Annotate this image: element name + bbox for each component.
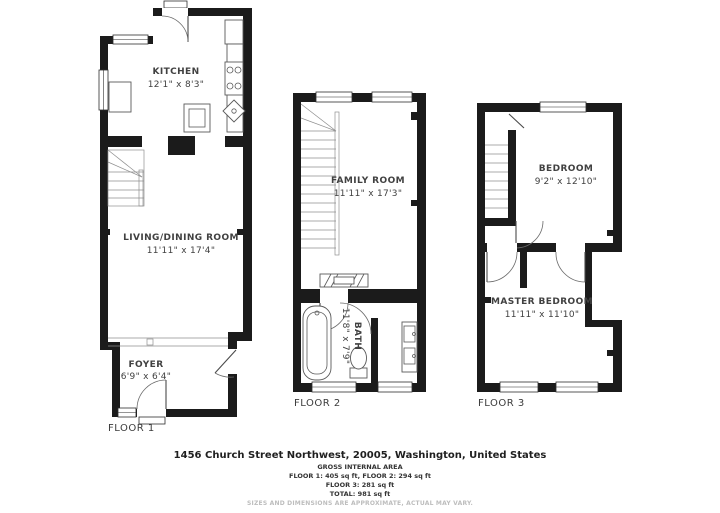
window xyxy=(99,70,108,110)
closet-door xyxy=(556,243,585,282)
footer: 1456 Church Street Northwest, 20005, Was… xyxy=(0,449,720,509)
floor-3-label: FLOOR 3 xyxy=(478,398,525,409)
wall-segment xyxy=(520,252,527,288)
floor-areas-line-1: FLOOR 1: 405 sq ft, FLOOR 2: 294 sq ft xyxy=(0,472,720,481)
room-label-living-dining: LIVING/DINING ROOM xyxy=(123,233,239,243)
kitchen-island xyxy=(184,104,210,132)
window xyxy=(316,92,352,102)
window xyxy=(540,102,586,112)
staircase xyxy=(108,150,144,206)
window xyxy=(113,35,148,44)
floor-1-label: FLOOR 1 xyxy=(108,423,155,434)
refrigerator xyxy=(225,20,243,44)
room-dims-kitchen: 12'1" x 8'3" xyxy=(148,80,205,90)
bath-divider-wall xyxy=(293,289,426,303)
window xyxy=(118,408,136,417)
window xyxy=(556,382,598,392)
floor-areas-line-2: FLOOR 3: 281 sq ft xyxy=(0,481,720,490)
room-dims-living-dining: 11'11" x 17'4" xyxy=(147,246,216,256)
floor-1-plan: KITCHEN 12'1" x 8'3" LIVING/DINING ROOM … xyxy=(99,1,252,434)
wall-segment xyxy=(228,332,252,341)
floor-3-plan: BEDROOM 9'2" x 12'10" MASTER BEDROOM 11'… xyxy=(477,102,622,409)
kitchen-divider-wall xyxy=(108,136,243,155)
cabinet xyxy=(109,82,131,112)
room-label-master-bedroom: MASTER BEDROOM xyxy=(491,297,593,307)
wall-segment xyxy=(371,318,378,383)
room-label-kitchen: KITCHEN xyxy=(152,67,199,77)
wall-anchor xyxy=(104,229,110,235)
staircase xyxy=(485,114,524,208)
window xyxy=(372,92,412,102)
size-disclaimer: SIZES AND DIMENSIONS ARE APPROXIMATE, AC… xyxy=(0,499,720,509)
total-area: TOTAL: 981 sq ft xyxy=(0,490,720,499)
room-label-family-room: FAMILY ROOM xyxy=(331,176,405,186)
room-dims-master-bedroom: 11'11" x 11'10" xyxy=(505,310,580,320)
floor-2-label: FLOOR 2 xyxy=(294,398,341,409)
wall-anchor xyxy=(607,230,613,236)
wall-anchor xyxy=(411,112,417,120)
stair-wall xyxy=(508,130,516,218)
wall-anchor xyxy=(607,350,613,356)
closet-door xyxy=(215,349,237,377)
gross-internal-area-label: GROSS INTERNAL AREA xyxy=(0,463,720,472)
entry-door xyxy=(162,1,188,42)
stove xyxy=(225,62,243,95)
bathtub xyxy=(303,306,331,380)
window xyxy=(312,382,356,392)
room-dims-family-room: 11'11" x 17'3" xyxy=(334,189,403,199)
floorplan-canvas: KITCHEN 12'1" x 8'3" LIVING/DINING ROOM … xyxy=(0,0,720,445)
window xyxy=(500,382,538,392)
foyer-door xyxy=(137,380,166,424)
floor-2-plan: FAMILY ROOM 11'11" x 17'3" BATH 11'8" x … xyxy=(293,92,426,409)
wall-anchor xyxy=(411,200,417,206)
window xyxy=(378,382,412,392)
room-dims-bedroom: 9'2" x 12'10" xyxy=(535,177,598,187)
room-label-foyer: FOYER xyxy=(128,360,163,370)
room-dims-foyer: 6'9" x 6'4" xyxy=(121,372,171,382)
fireplace xyxy=(320,274,368,287)
wall-segment xyxy=(477,218,516,226)
property-address: 1456 Church Street Northwest, 20005, Was… xyxy=(0,449,720,463)
toilet xyxy=(350,347,367,378)
vanity-sinks xyxy=(402,322,417,372)
room-label-bedroom: BEDROOM xyxy=(539,164,593,174)
wall-anchor xyxy=(295,238,301,244)
room-dims-bath: 11'8" x 7'9" xyxy=(340,308,350,365)
room-label-bath: BATH xyxy=(352,322,362,350)
floor-step-line xyxy=(108,338,228,346)
closet-door xyxy=(487,243,517,282)
